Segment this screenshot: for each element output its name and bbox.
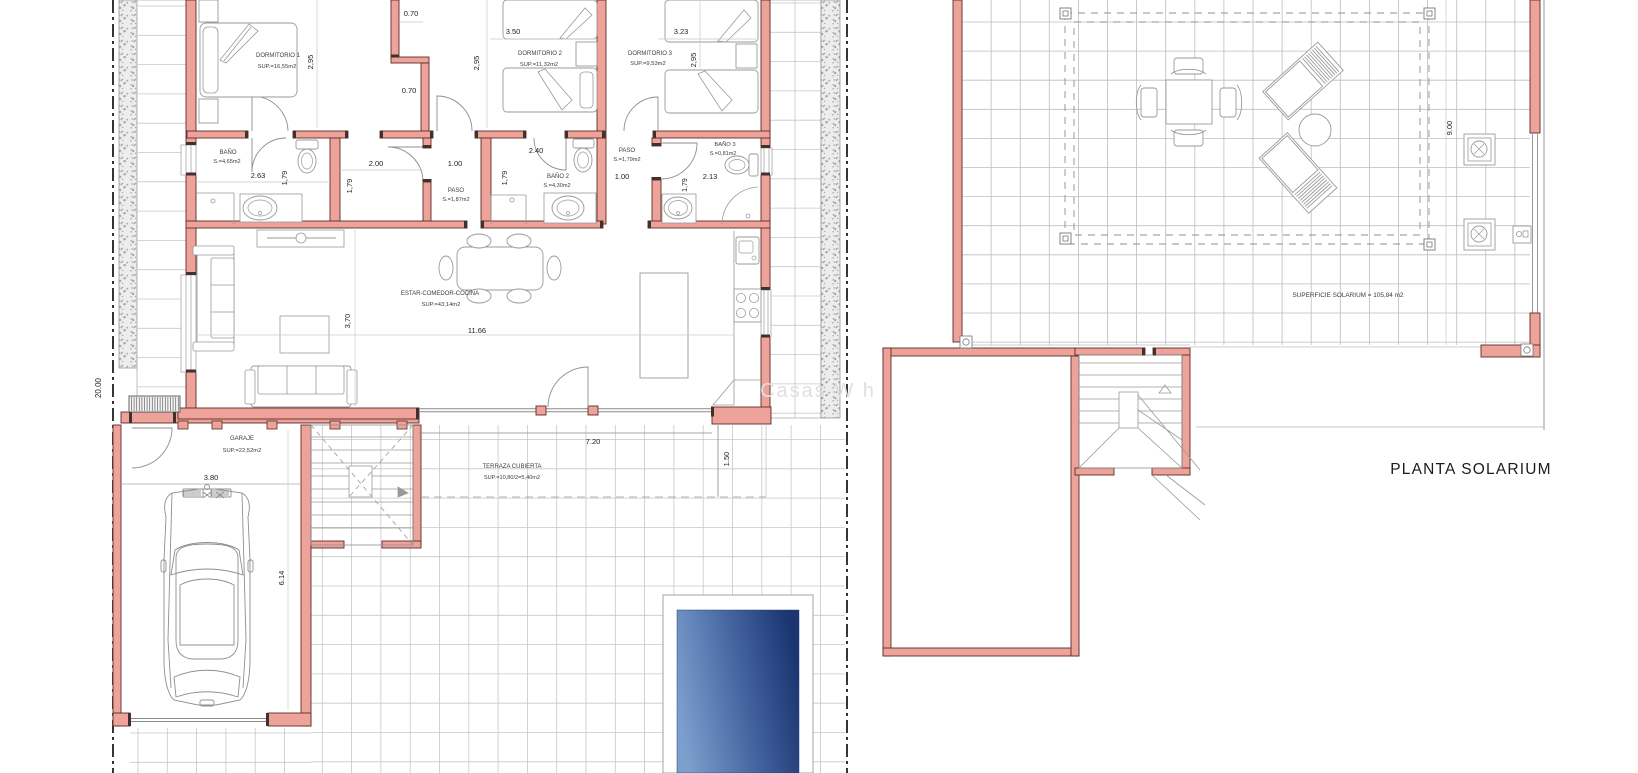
svg-text:BAÑO 3: BAÑO 3	[714, 141, 735, 148]
svg-text:S.=1,79m2: S.=1,79m2	[613, 157, 640, 163]
svg-text:ESTAR-COMEDOR-COCINA: ESTAR-COMEDOR-COCINA	[401, 291, 479, 297]
svg-text:S.=1,87m2: S.=1,87m2	[442, 197, 469, 203]
svg-text:SUP.=22,52m2: SUP.=22,52m2	[223, 448, 262, 454]
svg-text:S.=4,65m2: S.=4,65m2	[213, 159, 240, 165]
svg-text:6.14: 6.14	[277, 571, 286, 586]
svg-text:1.00: 1.00	[448, 159, 463, 168]
svg-text:0.70: 0.70	[404, 9, 419, 18]
svg-text:2,95: 2,95	[689, 53, 698, 68]
svg-text:1,79: 1,79	[345, 179, 354, 194]
svg-text:DORMITORIO 1: DORMITORIO 1	[256, 53, 301, 59]
svg-text:7.20: 7.20	[586, 437, 601, 446]
svg-text:SUP.=9,53m2: SUP.=9,53m2	[630, 61, 666, 67]
svg-text:PLANTA SOLARIUM: PLANTA SOLARIUM	[1390, 461, 1552, 478]
svg-text:Casas W h: Casas W h	[760, 380, 876, 402]
svg-text:3.80: 3.80	[204, 473, 219, 482]
svg-text:11.66: 11.66	[468, 326, 486, 335]
svg-text:GARAJE: GARAJE	[230, 436, 254, 442]
svg-text:20.00: 20.00	[94, 377, 103, 398]
svg-text:PASO: PASO	[619, 148, 636, 154]
svg-text:SUP.=16,55m2: SUP.=16,55m2	[258, 64, 297, 70]
svg-text:3.23: 3.23	[674, 27, 689, 36]
svg-text:2.40: 2.40	[529, 146, 544, 155]
svg-text:DORMITORIO 3: DORMITORIO 3	[628, 51, 673, 57]
svg-text:2.13: 2.13	[703, 172, 718, 181]
svg-text:9.00: 9.00	[1445, 121, 1454, 136]
svg-text:SUPERFICIE SOLARIUM = 105,84 m: SUPERFICIE SOLARIUM = 105,84 m2	[1293, 292, 1404, 299]
svg-text:0.70: 0.70	[402, 86, 417, 95]
svg-text:PASO: PASO	[448, 188, 465, 194]
svg-text:2.00: 2.00	[369, 159, 384, 168]
svg-text:1,79: 1,79	[682, 178, 689, 192]
svg-text:1,79: 1,79	[280, 171, 289, 186]
svg-text:3,70: 3,70	[343, 314, 352, 329]
svg-text:BAÑO: BAÑO	[219, 149, 236, 156]
svg-text:3.50: 3.50	[506, 27, 521, 36]
svg-text:1,79: 1,79	[500, 171, 509, 186]
svg-text:BAÑO 2: BAÑO 2	[547, 173, 570, 180]
svg-text:2.63: 2.63	[251, 171, 266, 180]
svg-text:SUP.=10,80/2=5,40m2: SUP.=10,80/2=5,40m2	[484, 475, 540, 481]
svg-text:1.50: 1.50	[722, 452, 731, 467]
svg-text:S.=4,30m2: S.=4,30m2	[543, 183, 570, 189]
svg-text:DORMITORIO 2: DORMITORIO 2	[518, 51, 563, 57]
svg-text:2,95: 2,95	[472, 56, 481, 71]
svg-text:S.=0,81m2: S.=0,81m2	[710, 151, 737, 157]
svg-text:TERRAZA CUBIERTA: TERRAZA CUBIERTA	[482, 464, 541, 470]
svg-text:2,95: 2,95	[306, 55, 315, 70]
svg-text:SUP.=11,32m2: SUP.=11,32m2	[520, 62, 558, 68]
svg-text:SUP.=43,14m2: SUP.=43,14m2	[422, 302, 461, 308]
svg-text:1.00: 1.00	[615, 172, 630, 181]
